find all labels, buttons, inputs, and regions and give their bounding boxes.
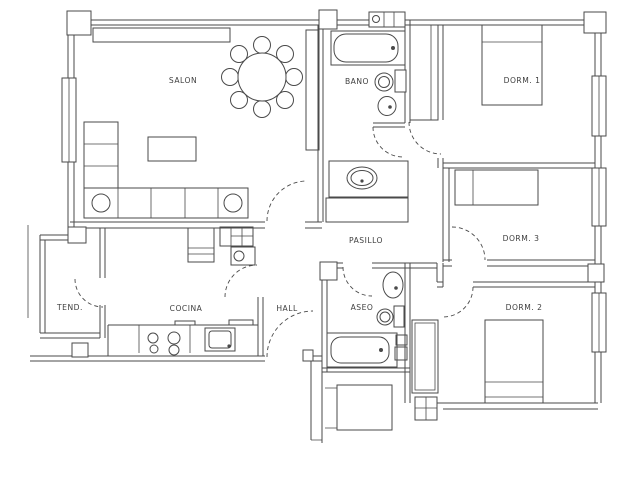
room-label-tend: TEND. (56, 303, 83, 312)
room-label-cocina: COCINA (170, 304, 203, 313)
chair-icon (286, 69, 303, 86)
bidet-bano (378, 97, 396, 116)
dining-set (222, 37, 303, 118)
sink-aseo (383, 272, 403, 298)
room-label-aseo: ASEO (351, 303, 374, 312)
floor-plan-page: SALON BANO DORM. 1 DORM. 3 PASILLO DORM.… (0, 0, 640, 480)
pillar-entry-jamb (303, 350, 313, 361)
pillar-pasillo-corner (320, 262, 337, 280)
room-label-dorm1: DORM. 1 (504, 76, 541, 85)
window-salon-left (62, 78, 76, 162)
window-dorm1-right (592, 76, 606, 136)
room-label-dorm2: DORM. 2 (506, 303, 543, 312)
pillar-top-right (584, 12, 606, 33)
page-background (0, 0, 640, 480)
room-label-hall: HALL (276, 304, 298, 313)
chair-icon (222, 69, 239, 86)
window-dorm2-right (592, 293, 606, 352)
round-dining-table (238, 53, 286, 101)
chair-icon (254, 37, 271, 54)
side-table-lamp-left (92, 194, 110, 212)
room-label-salon: SALON (169, 76, 197, 85)
window-dorm3-right (592, 168, 606, 226)
water-heater (369, 12, 405, 27)
floor-plan-canvas: SALON BANO DORM. 1 DORM. 3 PASILLO DORM.… (0, 0, 640, 480)
side-table-lamp-right (224, 194, 242, 212)
pillar-salon-bottom-left (68, 227, 86, 243)
room-label-pasillo: PASILLO (349, 236, 383, 245)
room-label-dorm3: DORM. 3 (503, 234, 540, 243)
pillar-tend-bottom (72, 343, 88, 357)
chair-icon (254, 101, 271, 118)
pillar-top-middle (319, 10, 337, 29)
room-label-bano: BANO (345, 77, 369, 86)
pillar-right-wall (588, 264, 604, 282)
pillar-top-left (67, 11, 91, 35)
